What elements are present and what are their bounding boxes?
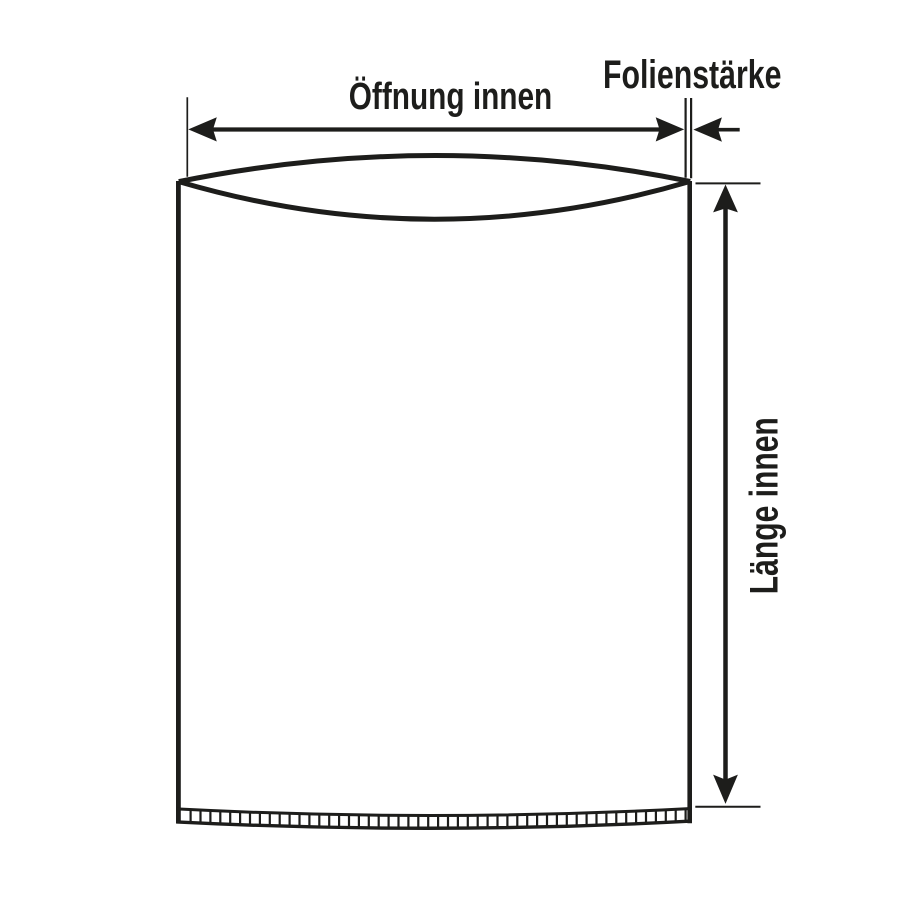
svg-text:Öffnung innen: Öffnung innen — [349, 75, 553, 118]
svg-text:Folienstärke: Folienstärke — [603, 53, 782, 97]
svg-text:Länge innen: Länge innen — [743, 417, 787, 594]
